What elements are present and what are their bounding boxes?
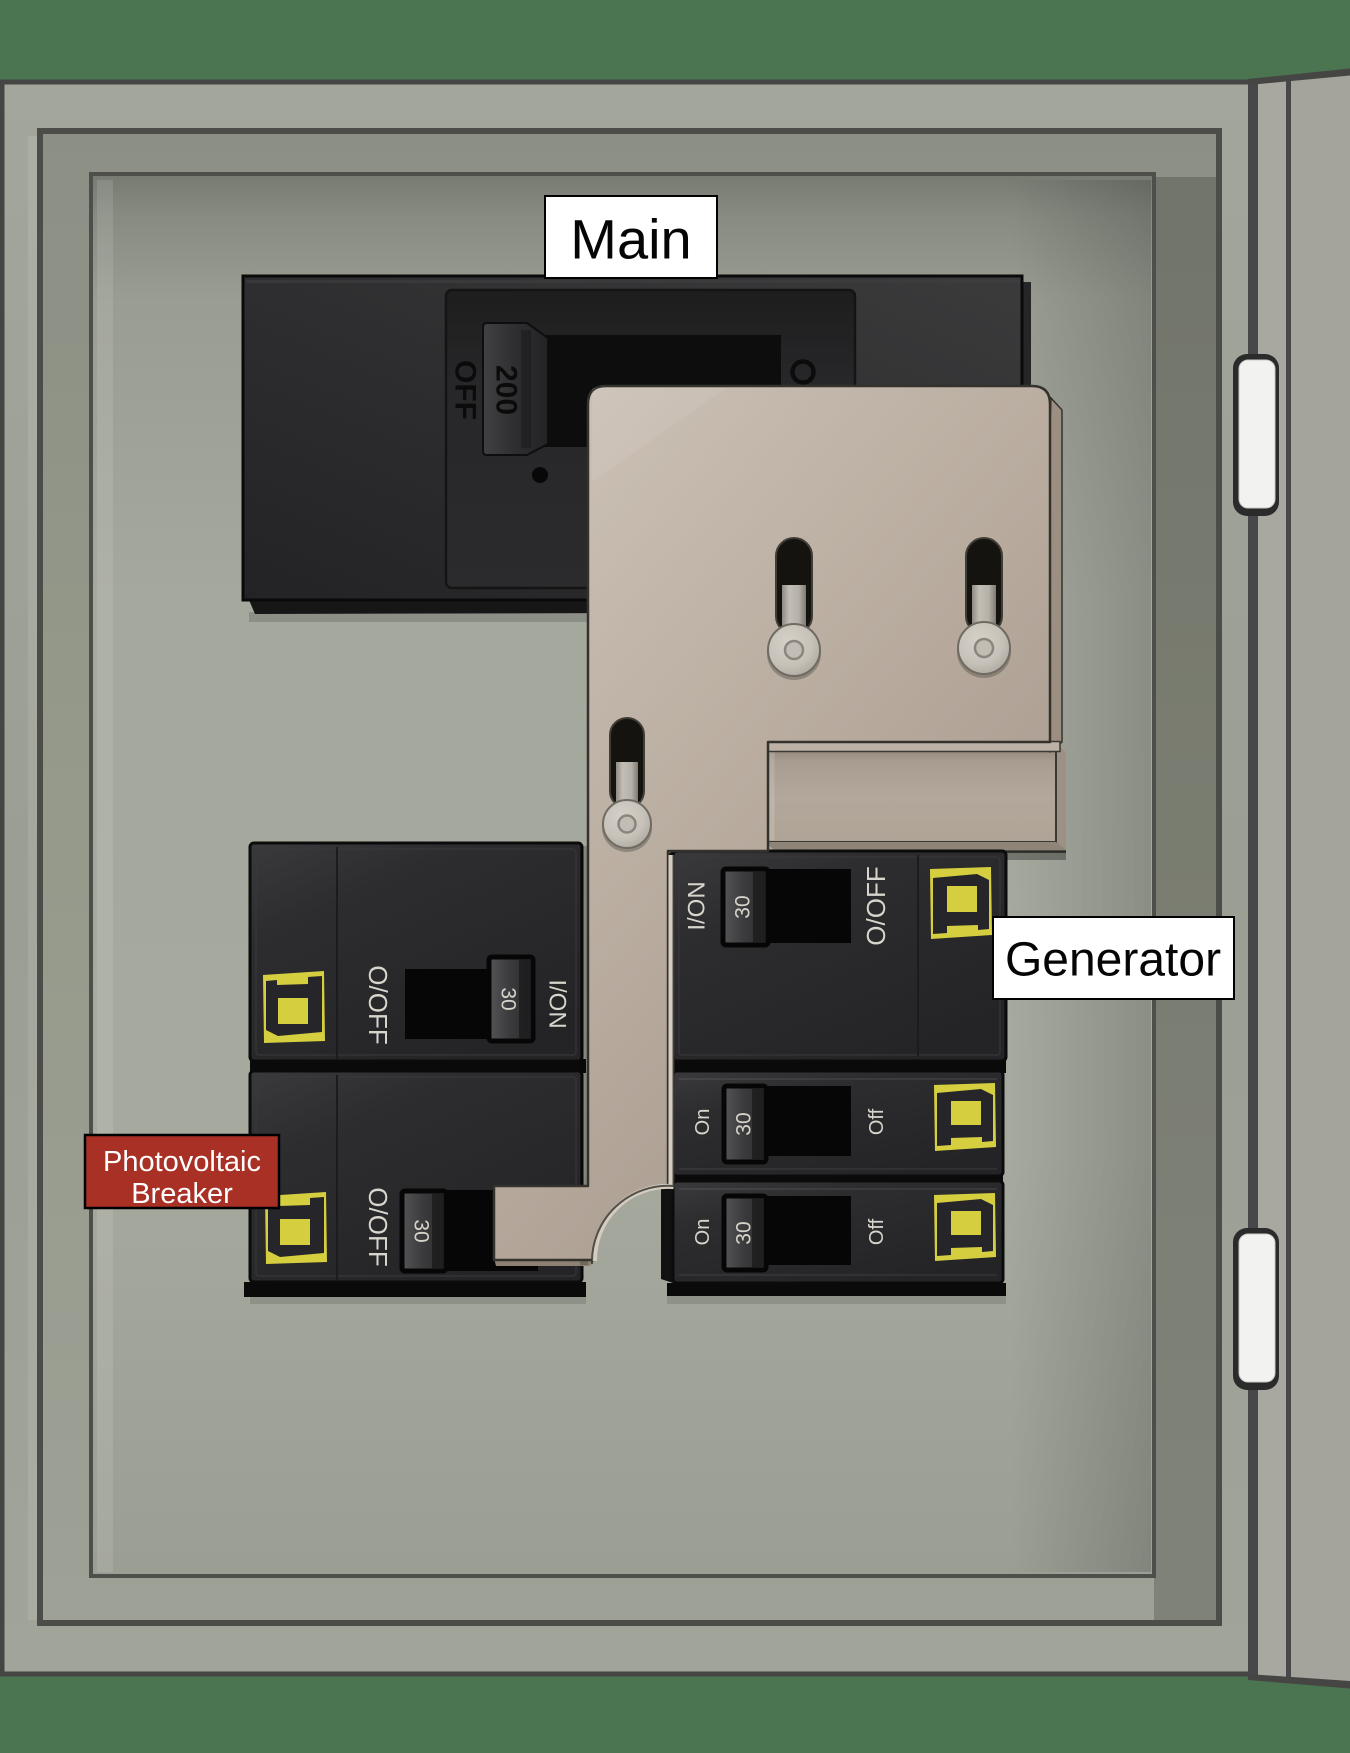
svg-text:200: 200 (490, 365, 523, 415)
svg-text:Generator: Generator (1005, 934, 1221, 987)
svg-text:30: 30 (733, 1112, 756, 1135)
svg-text:30: 30 (733, 1221, 756, 1244)
svg-text:30: 30 (732, 895, 755, 918)
svg-text:Main: Main (570, 208, 691, 271)
svg-text:I/ON: I/ON (544, 979, 571, 1028)
svg-text:O/OFF: O/OFF (363, 965, 393, 1044)
svg-text:Photovoltaic: Photovoltaic (103, 1146, 261, 1178)
svg-text:30: 30 (497, 987, 520, 1010)
svg-text:I/ON: I/ON (684, 881, 711, 930)
svg-text:Breaker: Breaker (131, 1178, 233, 1210)
svg-text:30: 30 (410, 1219, 433, 1242)
svg-text:O/OFF: O/OFF (363, 1187, 393, 1266)
svg-text:O/OFF: O/OFF (861, 866, 891, 945)
svg-text:OFF: OFF (449, 360, 482, 420)
svg-text:Off: Off (866, 1218, 888, 1245)
svg-text:Off: Off (866, 1108, 888, 1135)
svg-text:On: On (692, 1109, 714, 1136)
svg-text:On: On (692, 1219, 714, 1246)
